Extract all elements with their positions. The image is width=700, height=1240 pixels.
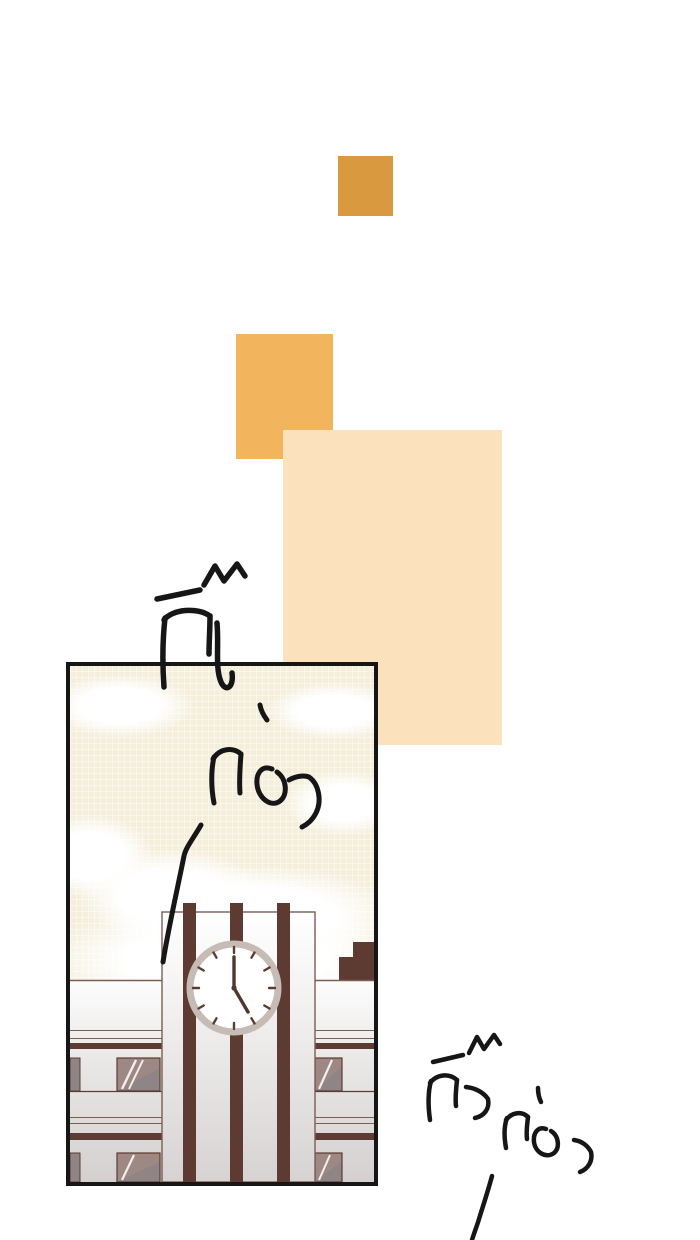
sfx-bottom-word1	[429, 1035, 500, 1120]
window	[315, 1153, 342, 1182]
clock-center-pin	[231, 985, 236, 990]
sfx-tail-line	[472, 1176, 492, 1240]
window	[315, 1058, 342, 1091]
building-scene	[70, 666, 374, 1182]
comic-page	[0, 0, 700, 1240]
comic-panel	[66, 662, 378, 1186]
building-left-wing	[70, 980, 162, 1182]
tower-stripe	[277, 903, 290, 1182]
clock-face	[190, 944, 278, 1032]
decor-square-small	[338, 156, 393, 216]
rooftop-silhouette	[339, 942, 374, 980]
building-right-wing	[315, 980, 374, 1182]
sfx-bottom-word2	[472, 1088, 591, 1240]
tower-stripe	[183, 903, 196, 1182]
